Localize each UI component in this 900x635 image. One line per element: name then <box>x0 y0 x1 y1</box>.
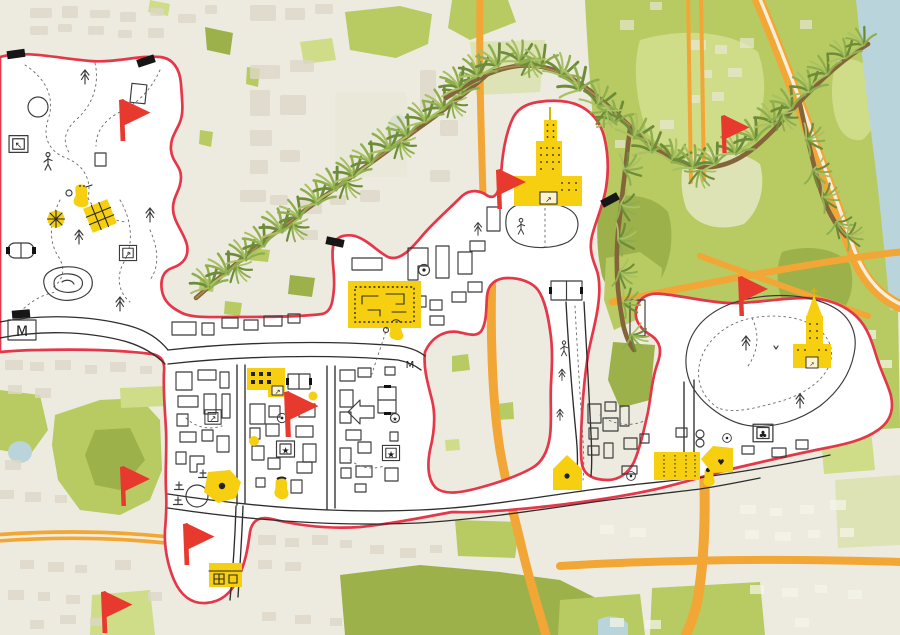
arrow-nw-icon: ↖ <box>15 141 23 151</box>
yellow-spot <box>309 392 318 401</box>
arrow-ne-icon: ↗ <box>275 388 281 396</box>
arrow-ne-icon: ↗ <box>210 414 217 423</box>
heart-icon: ♥ <box>717 458 724 467</box>
sun-wheel-icon <box>48 211 65 228</box>
arrow-ne-icon: ↗ <box>809 361 814 368</box>
arrow-ne-icon: ↗ <box>545 195 552 204</box>
south-lobe <box>209 563 242 587</box>
yellow-plan-square <box>348 281 421 328</box>
club-icon: ♣ <box>759 430 768 441</box>
star-icon: ★ <box>392 416 397 423</box>
yellow-striped-block <box>654 452 700 480</box>
star-icon: ★ <box>281 447 289 457</box>
yellow-figurine <box>274 478 288 500</box>
yellow-grid-house <box>209 563 242 587</box>
star-icon: ★ <box>387 451 395 461</box>
arrow-ne-icon: ↗ <box>125 250 132 259</box>
painted-map-artwork: ↖ ↗ M <box>0 0 900 635</box>
map-canvas: ↖ ↗ M <box>0 0 900 635</box>
metro-label: M <box>406 360 415 371</box>
metro-label: M <box>16 324 28 340</box>
entrance-marker <box>12 309 31 319</box>
yellow-spot <box>249 436 259 446</box>
